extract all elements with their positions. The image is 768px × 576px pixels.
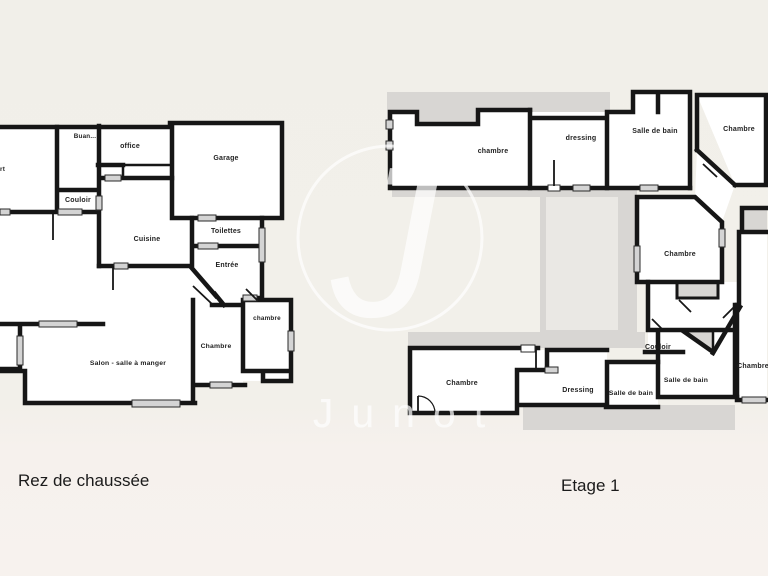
window xyxy=(259,228,265,262)
room-label-sdb-top: Salle de bain xyxy=(632,128,677,135)
room-label-chambre-center: Chambre xyxy=(664,251,696,258)
room-label-chambre-center: Chambre xyxy=(201,343,232,350)
watermark-monogram: J xyxy=(330,121,441,362)
courtyard-light xyxy=(546,197,618,330)
ground-floor-plan: Buan... office Garage rt Couloir Cuisine… xyxy=(0,123,294,407)
room-label-buanderie: Buan... xyxy=(74,133,96,140)
room-label-couloir: Couloir xyxy=(65,197,91,204)
room-label-chambre-tl: chambre xyxy=(478,148,509,155)
first-floor-plan: chambre dressing Salle de bain Chambre C… xyxy=(386,92,768,430)
room-label-toilettes: Toilettes xyxy=(211,228,241,235)
window xyxy=(634,246,640,272)
window xyxy=(210,382,232,388)
window xyxy=(114,263,128,269)
room-label-chambre-bl: Chambre xyxy=(446,380,478,387)
room-label-dressing-bottom: Dressing xyxy=(562,387,594,394)
window xyxy=(96,196,102,210)
floorplan-svg: Buan... office Garage rt Couloir Cuisine… xyxy=(0,0,768,576)
terrace-balcony xyxy=(742,208,767,232)
window xyxy=(58,209,82,215)
room-label-garage: Garage xyxy=(213,155,238,162)
window xyxy=(640,185,658,191)
window xyxy=(288,331,294,351)
window xyxy=(573,185,590,191)
room-label-chambre-br: Chambre xyxy=(737,363,768,370)
window xyxy=(742,397,766,403)
window xyxy=(105,175,121,181)
window xyxy=(545,367,558,373)
door-gap xyxy=(521,345,535,352)
window xyxy=(0,209,10,215)
room-label-chambre-right: chambre xyxy=(253,315,281,322)
room-label-salon: Salon - salle à manger xyxy=(90,360,166,367)
room-label-dressing-top: dressing xyxy=(566,135,597,142)
room-label-entree: Entrée xyxy=(216,262,239,269)
room-label-sdb-small: Salle de bain xyxy=(609,390,653,397)
room-label-couvert-cut: rt xyxy=(0,166,6,173)
window xyxy=(39,321,77,327)
terrace xyxy=(560,92,610,112)
room-label-couloir: Couloir xyxy=(645,344,671,351)
window xyxy=(719,229,725,247)
window xyxy=(198,215,216,221)
window xyxy=(198,243,218,249)
window xyxy=(17,336,23,365)
floorplan-image: Buan... office Garage rt Couloir Cuisine… xyxy=(0,0,768,576)
ground-floor-caption: Rez de chaussée xyxy=(18,471,149,490)
first-floor-caption: Etage 1 xyxy=(561,476,620,495)
watermark-brand: Junot xyxy=(313,390,503,436)
room-label-cuisine: Cuisine xyxy=(134,236,161,243)
room-label-office: office xyxy=(120,143,140,150)
closet-gray xyxy=(677,282,718,298)
window xyxy=(132,400,180,407)
room-label-sdb-right: Salle de bain xyxy=(664,377,708,384)
room-label-chambre-tr: Chambre xyxy=(723,126,755,133)
